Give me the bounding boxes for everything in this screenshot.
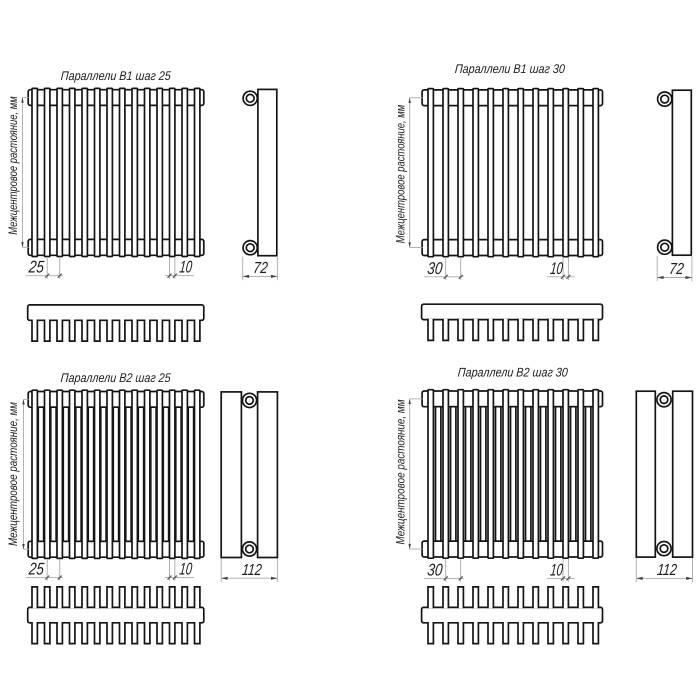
svg-text:112: 112	[241, 561, 262, 579]
svg-text:Межцентровое растояние, мм: Межцентровое растояние, мм	[6, 96, 20, 235]
svg-text:10: 10	[179, 560, 194, 579]
svg-text:30: 30	[426, 560, 443, 579]
svg-text:30: 30	[426, 259, 443, 278]
svg-text:10: 10	[549, 560, 564, 579]
svg-text:112: 112	[656, 561, 677, 579]
svg-text:Межцентровое растояние, мм: Межцентровое растояние, мм	[394, 400, 408, 545]
svg-text:Параллели В1 шаг 30: Параллели В1 шаг 30	[454, 62, 565, 76]
svg-text:Межцентровое растояние, мм: Межцентровое растояние, мм	[394, 105, 408, 244]
svg-text:Параллели В2 шаг 25: Параллели В2 шаг 25	[60, 371, 172, 385]
svg-text:Межцентровое растояние, мм: Межцентровое растояние, мм	[6, 402, 20, 546]
svg-text:25: 25	[27, 560, 45, 579]
svg-text:Параллели В2 шаг 30: Параллели В2 шаг 30	[457, 366, 568, 380]
svg-text:10: 10	[549, 259, 564, 278]
svg-text:10: 10	[179, 258, 194, 277]
svg-text:72: 72	[668, 260, 684, 278]
svg-text:Параллели В1 шаг 25: Параллели В1 шаг 25	[60, 69, 172, 83]
svg-text:25: 25	[27, 258, 45, 277]
svg-text:72: 72	[252, 259, 268, 277]
